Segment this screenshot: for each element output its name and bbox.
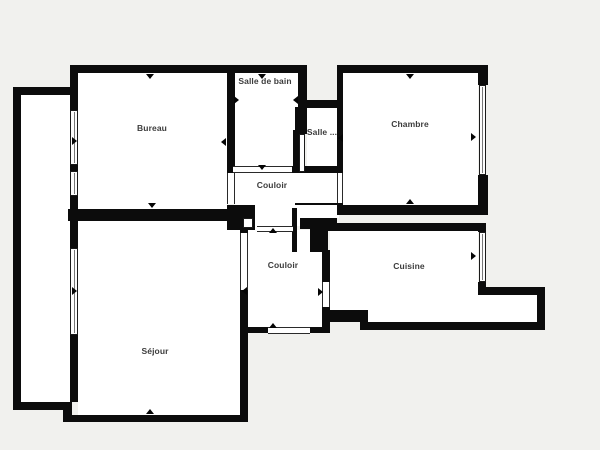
- marker: [72, 137, 77, 145]
- room-label-couloir-bas: Couloir: [268, 261, 298, 270]
- floor-cuisine-nook: [478, 295, 537, 322]
- marker: [234, 96, 239, 104]
- wall: [478, 65, 488, 85]
- room-label-cuisine: Cuisine: [393, 262, 424, 271]
- marker: [269, 228, 277, 233]
- wall-chambre-top: [337, 65, 488, 73]
- wall-sejour-bottom: [63, 415, 243, 422]
- marker: [471, 252, 476, 260]
- wall-chambre-bottom: [337, 205, 488, 215]
- floor-bureau: [78, 73, 227, 209]
- marker: [146, 74, 154, 79]
- wall: [70, 221, 78, 248]
- floor-salle-de-bain: [235, 73, 298, 166]
- wall: [322, 310, 368, 322]
- floor-plan: Bureau Salle de bain Salle ... Chambre C…: [0, 0, 600, 450]
- window-bureau-2: [70, 171, 78, 196]
- wall-bureau-right: [227, 65, 235, 173]
- wall: [70, 65, 78, 110]
- floor-salle: [307, 108, 337, 166]
- marker: [406, 74, 414, 79]
- wall-entrance-right: [310, 327, 330, 333]
- marker: [471, 133, 476, 141]
- marker: [258, 165, 266, 170]
- room-label-salle-de-bain: Salle de bain: [238, 77, 291, 86]
- room-label-chambre: Chambre: [391, 120, 429, 129]
- room-label-sejour: Séjour: [141, 347, 168, 356]
- room-label-salle: Salle ...: [307, 128, 337, 137]
- marker: [148, 203, 156, 208]
- wall-bureau-sejour: [68, 209, 240, 221]
- wall-loggia-bottom: [13, 402, 70, 410]
- window-chambre: [479, 85, 486, 175]
- wall-thin-alcove: [295, 203, 339, 205]
- door-bureau: [227, 173, 235, 204]
- wall-cuisine-top: [322, 223, 486, 231]
- door-entrance: [268, 327, 310, 334]
- marker: [338, 134, 343, 142]
- wall: [70, 335, 78, 402]
- wall-cuisine-bottom: [360, 322, 545, 330]
- floor-cuisine: [330, 231, 478, 322]
- marker: [318, 288, 323, 296]
- marker: [72, 287, 77, 295]
- door-sejour: [240, 233, 248, 290]
- wall-loggia-top: [13, 87, 73, 95]
- wall: [478, 223, 486, 232]
- floor-loggia: [21, 95, 70, 402]
- wall-duct-stem: [310, 229, 328, 252]
- marker: [242, 287, 247, 295]
- marker: [406, 199, 414, 204]
- marker: [221, 138, 226, 146]
- wall-nook-top: [478, 287, 545, 295]
- window-cuisine: [479, 232, 486, 282]
- floor-sejour: [78, 221, 240, 415]
- room-label-bureau: Bureau: [137, 124, 167, 133]
- wall-couloir-cuisine: [322, 250, 330, 282]
- marker: [146, 409, 154, 414]
- floor-chambre: [343, 73, 478, 205]
- wall-entrance-left: [240, 327, 268, 333]
- wall-outer-left: [13, 87, 21, 410]
- floor-alcove: [295, 205, 339, 218]
- marker: [293, 96, 298, 104]
- niche-junction: [243, 218, 253, 228]
- marker: [269, 323, 277, 328]
- wall-sejour-right: [240, 290, 248, 422]
- door-chambre: [337, 173, 343, 203]
- room-label-couloir-haut: Couloir: [257, 181, 287, 190]
- wall-chambre-left: [337, 65, 343, 173]
- niche-duct: [299, 134, 305, 172]
- door-cuisine: [322, 282, 330, 307]
- wall-top: [70, 65, 307, 73]
